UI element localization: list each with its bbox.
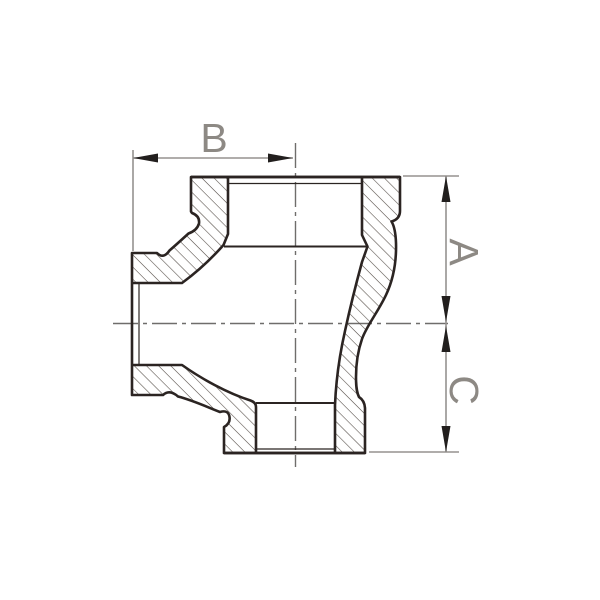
fitting-wall-section	[132, 177, 400, 453]
dimension-a-label: A	[441, 238, 487, 266]
pipe-fitting-section-drawing: B A C	[0, 0, 600, 600]
drawing-canvas: B A C	[0, 0, 600, 600]
dimension-c-label: C	[441, 375, 487, 405]
fitting-body-group	[132, 177, 400, 453]
arrow-up-icon	[442, 326, 451, 352]
dimension-b-label: B	[200, 115, 227, 161]
arrow-left-icon	[133, 154, 158, 163]
arrow-up-icon	[442, 176, 451, 202]
arrow-down-icon	[442, 296, 451, 322]
arrow-down-icon	[442, 426, 451, 452]
arrow-right-icon	[268, 154, 293, 163]
